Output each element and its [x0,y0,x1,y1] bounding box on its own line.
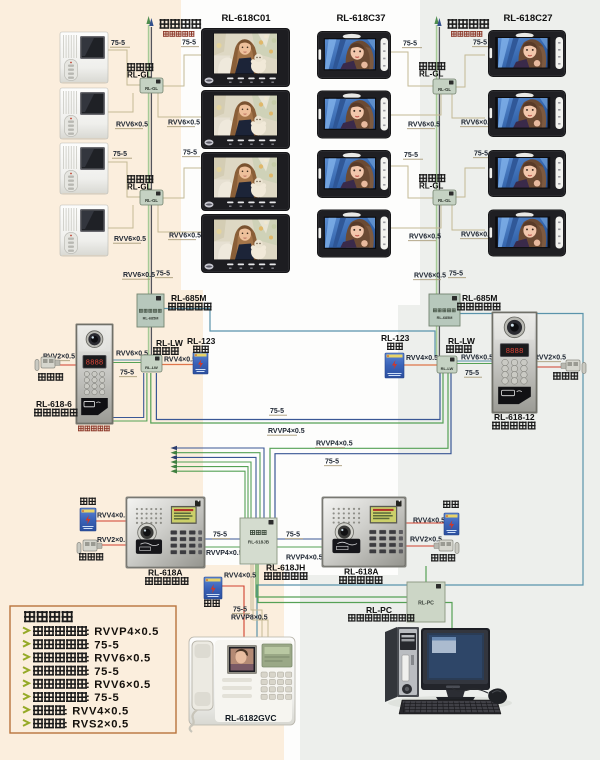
svg-text:RL-618C37: RL-618C37 [336,13,385,24]
svg-text:: 75-5: : 75-5 [86,639,119,651]
svg-text:RL-GL: RL-GL [127,71,152,80]
svg-text:RL-618JB: RL-618JB [248,539,270,544]
svg-text:RVV6×0.5: RVV6×0.5 [169,233,201,240]
svg-text:: 75-5: : 75-5 [86,692,119,704]
svg-text:75-5: 75-5 [403,41,417,48]
svg-text:RL-685M: RL-685M [143,317,159,321]
svg-text:RVV4×0.5: RVV4×0.5 [164,357,196,364]
svg-text:8888: 8888 [86,360,104,368]
svg-text:75-5: 75-5 [449,271,463,278]
svg-text:75-5: 75-5 [404,152,418,159]
svg-text:75-5: 75-5 [213,532,227,539]
svg-text:RL-LW: RL-LW [441,366,454,371]
svg-text:RL-123: RL-123 [187,336,216,346]
svg-text:RL-GL: RL-GL [438,87,451,92]
svg-text:: RVV6×0.5: : RVV6×0.5 [86,679,151,691]
svg-text:75-5: 75-5 [325,459,339,466]
svg-text:RVV6×0.5: RVV6×0.5 [461,355,493,362]
svg-text:RL-685M: RL-685M [462,293,497,303]
svg-text:RL-685M: RL-685M [437,316,453,320]
svg-text:RVVP8×0.5: RVVP8×0.5 [231,615,268,622]
svg-text:RL-6182GVC: RL-6182GVC [225,713,277,723]
svg-text:75-5: 75-5 [120,370,134,377]
svg-text:RL-685M: RL-685M [171,293,206,303]
svg-text:: RVV6×0.5: : RVV6×0.5 [86,653,151,665]
svg-text:RL-PC: RL-PC [418,601,434,607]
svg-text:75-5: 75-5 [111,40,125,47]
svg-text:RL-GL: RL-GL [419,182,444,191]
svg-text:RVV6×0.5: RVV6×0.5 [116,122,148,129]
svg-text:RVV6×0.5: RVV6×0.5 [114,236,146,243]
svg-text:RVV2×0.5: RVV2×0.5 [534,355,566,362]
svg-text:RL-LW: RL-LW [145,365,158,370]
svg-text:75-5: 75-5 [233,607,247,614]
svg-text:: RVS2×0.5: : RVS2×0.5 [64,719,129,731]
svg-text:RL-618-6: RL-618-6 [36,399,72,409]
svg-text:RL-618A: RL-618A [344,567,378,577]
svg-text:RL-PC: RL-PC [366,605,392,615]
svg-text:: RVV4×0.5: : RVV4×0.5 [64,705,129,717]
svg-text:RVV6×0.5: RVV6×0.5 [168,120,200,127]
svg-text:75-5: 75-5 [286,532,300,539]
svg-text:RL-618-12: RL-618-12 [494,412,535,422]
svg-text:75-5: 75-5 [465,370,479,377]
svg-text:RL-GL: RL-GL [419,70,444,79]
svg-text:RVV2×0.5: RVV2×0.5 [410,537,442,544]
svg-text:RVV6×0.5: RVV6×0.5 [414,273,446,280]
svg-text:75-5: 75-5 [156,271,170,278]
svg-text:RL-618C01: RL-618C01 [221,13,271,24]
svg-text:RVV6×0.5: RVV6×0.5 [123,272,155,279]
svg-text:RVV4×0.5: RVV4×0.5 [224,573,256,580]
svg-text:75-5: 75-5 [473,40,487,47]
svg-text:RL-GL: RL-GL [127,183,152,192]
svg-text:RVVP4×0.5: RVVP4×0.5 [316,441,353,448]
svg-text:RVVP4×0.5: RVVP4×0.5 [206,550,243,557]
svg-text:75-5: 75-5 [183,150,197,157]
svg-text:RL-618C27: RL-618C27 [503,13,552,24]
svg-text:RVVP4×0.5: RVVP4×0.5 [286,555,323,562]
svg-text:75-5: 75-5 [270,408,284,415]
svg-text:75-5: 75-5 [113,151,127,158]
svg-text:RL-618A: RL-618A [148,568,182,578]
svg-text:: 75-5: : 75-5 [86,666,119,678]
svg-text:75-5: 75-5 [474,151,488,158]
svg-text:RL-GL: RL-GL [145,86,158,91]
svg-text:RL-GL: RL-GL [145,198,158,203]
svg-text:RL-LW: RL-LW [156,338,184,348]
svg-text:8888: 8888 [506,348,524,356]
svg-text:75-5: 75-5 [182,40,196,47]
svg-text:: RVVP4×0.5: : RVVP4×0.5 [86,626,159,638]
svg-text:RVVP4×0.5: RVVP4×0.5 [268,428,305,435]
svg-text:RL-123: RL-123 [381,333,410,343]
svg-text:RVV4×0.5: RVV4×0.5 [413,518,445,525]
svg-text:RL-GL: RL-GL [438,198,451,203]
svg-text:RVV6×0.5: RVV6×0.5 [409,234,441,241]
svg-text:RVV6×0.5: RVV6×0.5 [408,122,440,129]
svg-text:RVV4×0.5: RVV4×0.5 [406,355,438,362]
svg-text:RL-LW: RL-LW [448,336,476,346]
svg-text:RL-618JH: RL-618JH [266,563,305,573]
svg-text:RVV4×0.5: RVV4×0.5 [97,513,129,520]
